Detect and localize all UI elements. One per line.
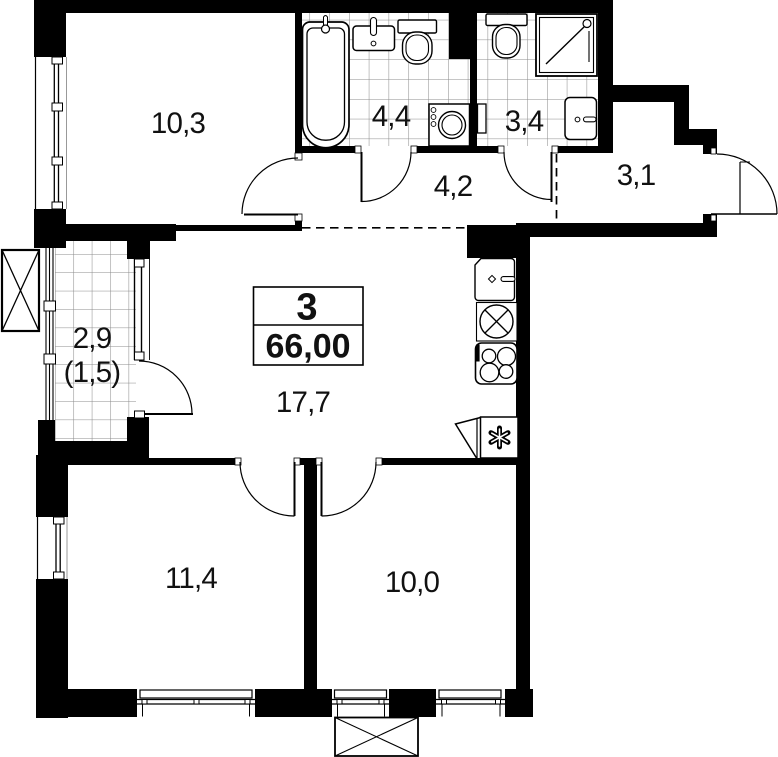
svg-text:3: 3	[296, 287, 317, 329]
svg-text:(1,5): (1,5)	[64, 356, 121, 389]
svg-text:3,4: 3,4	[505, 105, 544, 138]
svg-text:10,3: 10,3	[151, 107, 206, 140]
svg-text:3,1: 3,1	[617, 159, 656, 192]
svg-text:10,0: 10,0	[385, 566, 440, 599]
svg-text:2,9: 2,9	[73, 322, 112, 355]
svg-text:11,4: 11,4	[165, 562, 217, 595]
svg-text:66,00: 66,00	[265, 328, 350, 366]
svg-text:4,4: 4,4	[372, 100, 411, 133]
svg-text:17,7: 17,7	[276, 386, 330, 419]
svg-text:4,2: 4,2	[434, 170, 473, 203]
